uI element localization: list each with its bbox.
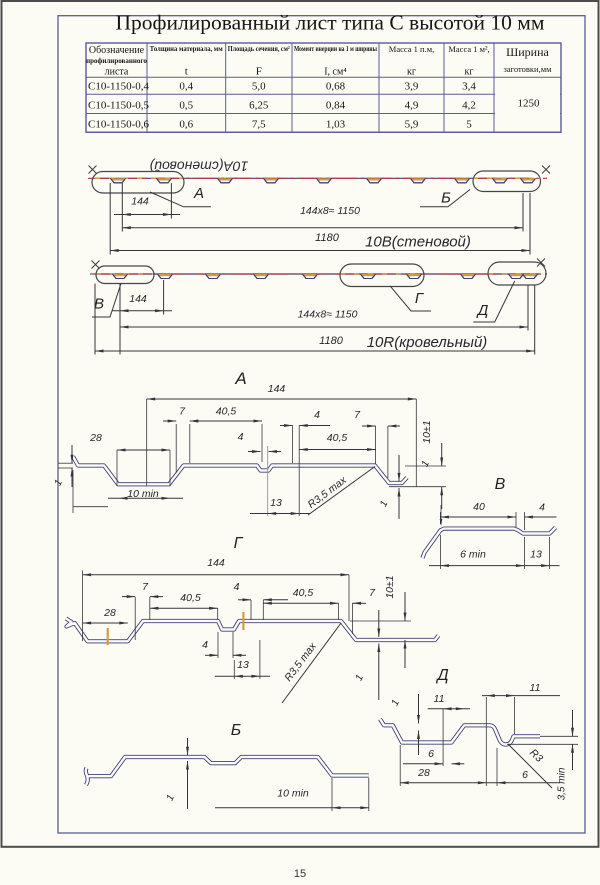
svg-text:40,5: 40,5 — [216, 406, 237, 418]
svg-text:Масса 1 м²,: Масса 1 м², — [448, 44, 489, 54]
svg-text:4: 4 — [314, 409, 320, 421]
svg-text:С10-1150-0,4: С10-1150-0,4 — [88, 81, 150, 93]
svg-text:5,0: 5,0 — [252, 81, 266, 93]
svg-text:40,5: 40,5 — [327, 432, 348, 444]
svg-text:А: А — [234, 369, 246, 388]
svg-text:0,5: 0,5 — [179, 100, 193, 112]
svg-text:10 min: 10 min — [127, 488, 159, 500]
svg-text:4,2: 4,2 — [462, 100, 476, 112]
svg-text:40: 40 — [473, 501, 485, 513]
svg-text:7,5: 7,5 — [252, 119, 266, 131]
svg-text:144х8≈ 1150: 144х8≈ 1150 — [300, 205, 360, 217]
svg-text:4: 4 — [202, 639, 208, 651]
svg-text:Ширина: Ширина — [506, 45, 549, 59]
svg-text:3,4: 3,4 — [462, 81, 476, 93]
svg-text:144: 144 — [131, 196, 149, 208]
svg-text:28: 28 — [417, 767, 430, 779]
svg-text:6 min: 6 min — [460, 549, 486, 561]
svg-text:13: 13 — [237, 659, 249, 671]
svg-text:С10-1150-0,6: С10-1150-0,6 — [88, 119, 150, 131]
svg-text:1180: 1180 — [319, 335, 344, 347]
svg-text:кг: кг — [465, 67, 474, 78]
svg-text:Площадь сечения, см²: Площадь сечения, см² — [228, 45, 290, 53]
svg-text:Г: Г — [234, 535, 244, 552]
svg-text:4,9: 4,9 — [405, 100, 419, 112]
svg-text:144: 144 — [207, 557, 225, 569]
svg-text:40,5: 40,5 — [180, 592, 201, 604]
svg-text:заготовки,мм: заготовки,мм — [504, 64, 553, 74]
svg-text:15: 15 — [294, 868, 306, 880]
svg-text:4: 4 — [238, 431, 244, 443]
svg-text:6: 6 — [522, 769, 528, 781]
svg-text:0,6: 0,6 — [179, 119, 193, 131]
svg-text:Б: Б — [231, 722, 241, 739]
svg-text:Толщина материала, мм: Толщина материала, мм — [150, 45, 223, 53]
svg-text:11: 11 — [434, 693, 445, 705]
svg-text:10R(кровельный): 10R(кровельный) — [367, 334, 488, 351]
svg-text:Обозначение: Обозначение — [89, 45, 145, 56]
svg-text:6: 6 — [428, 748, 434, 760]
svg-text:13: 13 — [270, 497, 282, 509]
svg-text:А: А — [193, 185, 204, 202]
svg-text:10±1: 10±1 — [384, 575, 396, 598]
svg-text:4: 4 — [234, 581, 240, 593]
svg-text:40,5: 40,5 — [293, 587, 314, 599]
svg-text:кг: кг — [407, 67, 416, 78]
svg-text:Д: Д — [476, 302, 489, 319]
svg-text:t: t — [185, 66, 188, 78]
svg-text:3,5 min: 3,5 min — [557, 767, 568, 800]
svg-text:28: 28 — [103, 607, 116, 619]
svg-text:6,25: 6,25 — [249, 100, 269, 112]
svg-text:4: 4 — [539, 502, 545, 514]
svg-text:I, см⁴: I, см⁴ — [324, 67, 347, 78]
svg-text:144: 144 — [268, 383, 286, 395]
svg-text:10 min: 10 min — [277, 788, 309, 800]
svg-text:10±1: 10±1 — [421, 420, 433, 443]
svg-text:С10-1150-0,5: С10-1150-0,5 — [88, 100, 150, 112]
svg-text:0,68: 0,68 — [326, 81, 346, 93]
svg-text:Профилированный лист типа С вы: Профилированный лист типа С высотой 10 м… — [116, 11, 545, 35]
svg-text:0,84: 0,84 — [326, 100, 346, 112]
svg-text:13: 13 — [530, 549, 542, 561]
svg-text:листа: листа — [105, 67, 129, 78]
svg-text:144: 144 — [129, 293, 147, 305]
svg-text:В: В — [495, 476, 506, 493]
svg-text:Д: Д — [435, 667, 448, 684]
svg-text:Масса 1 п.м,: Масса 1 п.м, — [389, 44, 434, 54]
svg-text:5: 5 — [466, 119, 472, 131]
svg-text:28: 28 — [89, 432, 102, 444]
svg-text:0,4: 0,4 — [179, 81, 193, 93]
svg-text:1,03: 1,03 — [326, 119, 346, 131]
svg-text:1250: 1250 — [518, 98, 541, 110]
svg-text:5,9: 5,9 — [405, 119, 419, 131]
svg-text:F: F — [256, 66, 262, 78]
svg-text:1180: 1180 — [315, 232, 340, 244]
svg-text:Б: Б — [441, 190, 451, 207]
svg-text:11: 11 — [530, 682, 541, 694]
svg-text:10В(стеновой): 10В(стеновой) — [365, 234, 471, 251]
svg-text:Момент инерции на 1 м ширины: Момент инерции на 1 м ширины — [294, 45, 377, 53]
svg-text:профилированного: профилированного — [86, 57, 147, 65]
svg-text:3,9: 3,9 — [405, 81, 419, 93]
svg-text:144х8≈ 1150: 144х8≈ 1150 — [298, 309, 358, 321]
